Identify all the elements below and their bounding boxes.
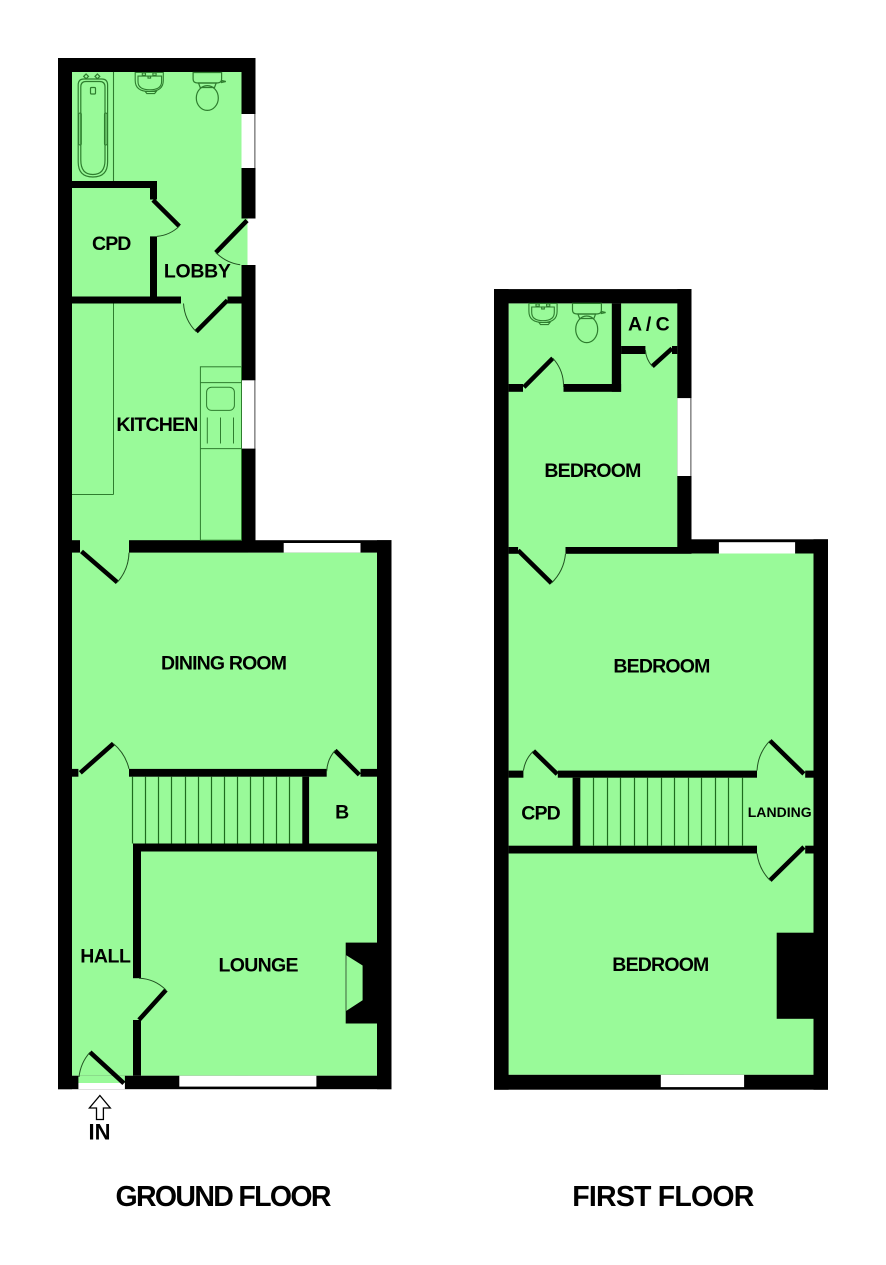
svg-text:CPD: CPD <box>92 233 131 255</box>
svg-text:HALL: HALL <box>80 946 131 968</box>
svg-text:LANDING: LANDING <box>748 804 812 820</box>
svg-text:LOBBY: LOBBY <box>164 261 231 283</box>
svg-text:LOUNGE: LOUNGE <box>219 955 299 977</box>
svg-text:FIRST FLOOR: FIRST FLOOR <box>572 1181 754 1213</box>
svg-text:BEDROOM: BEDROOM <box>613 655 710 677</box>
svg-text:BEDROOM: BEDROOM <box>544 460 641 482</box>
svg-text:KITCHEN: KITCHEN <box>116 414 198 436</box>
svg-text:IN: IN <box>89 1119 111 1144</box>
svg-text:A / C: A / C <box>628 314 670 336</box>
svg-text:DINING ROOM: DINING ROOM <box>161 653 287 675</box>
svg-text:CPD: CPD <box>521 803 560 825</box>
svg-text:B: B <box>335 802 349 824</box>
svg-text:BEDROOM: BEDROOM <box>612 954 709 976</box>
svg-text:GROUND FLOOR: GROUND FLOOR <box>116 1181 332 1213</box>
